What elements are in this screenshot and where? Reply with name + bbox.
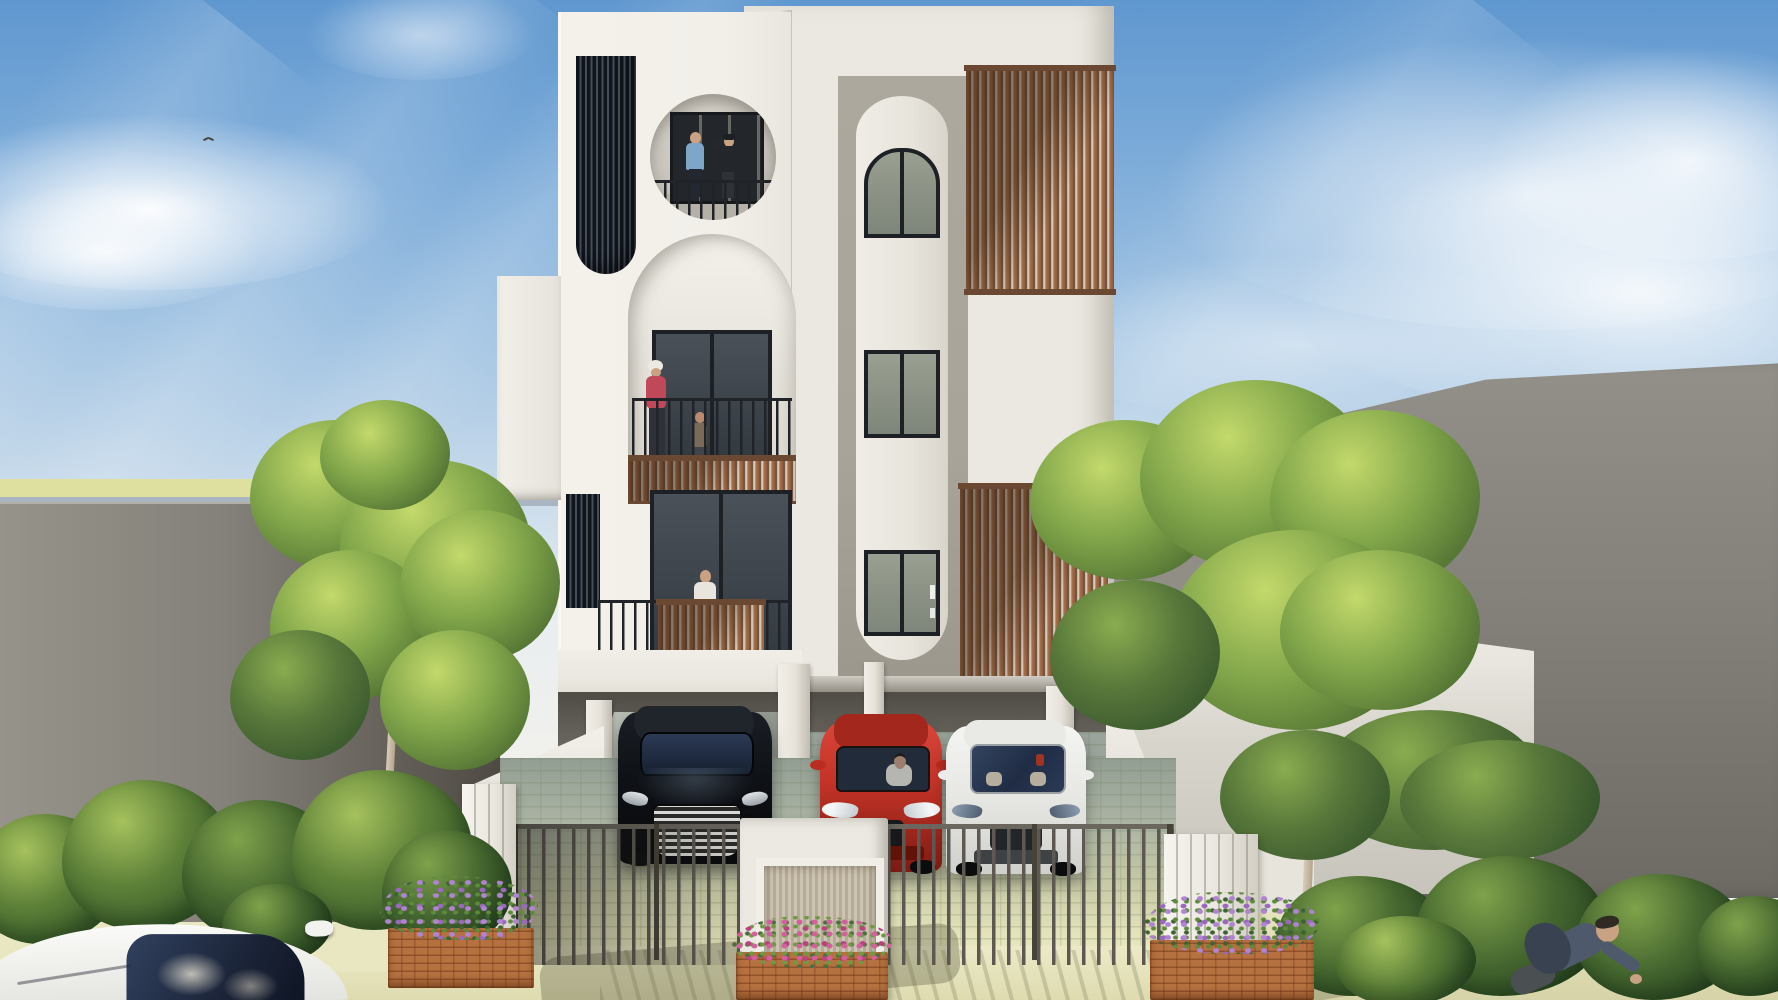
middle-window (864, 350, 940, 438)
car-windshield (126, 934, 304, 1000)
bird-wing (208, 137, 214, 141)
lower-window (864, 550, 940, 636)
arm (1598, 939, 1642, 974)
torso (686, 143, 704, 170)
windshield-tint (838, 748, 928, 790)
car-mirror (810, 760, 826, 770)
tree-left (230, 400, 530, 820)
tree-foliage (230, 630, 370, 760)
balcony-railing (652, 180, 774, 220)
wood-slat-screen-upper (966, 68, 1114, 292)
planter-left-flowers (380, 876, 538, 940)
windshield-reflection (156, 952, 226, 996)
car-mirror (305, 920, 334, 937)
dark-louver-panel-top (576, 56, 636, 274)
car-seat (986, 772, 1002, 786)
car-roof (834, 714, 928, 748)
car-mirror (938, 770, 954, 780)
cap (723, 134, 735, 140)
tree-foliage (320, 400, 450, 510)
window-reflection (930, 608, 935, 618)
planter-center-flowers (732, 916, 892, 968)
bird (203, 136, 215, 142)
tree-foliage (1050, 580, 1220, 730)
hand (1630, 974, 1642, 984)
dark-louver-panel-mid (566, 494, 600, 608)
bush (1336, 916, 1476, 1000)
person-cyclist (1492, 912, 1642, 1000)
tree-foliage (1400, 740, 1600, 860)
windshield-reflection (222, 968, 278, 1000)
car-windshield (836, 746, 930, 792)
car-foreground-white (0, 900, 350, 1000)
planter-right-flowers (1144, 892, 1320, 954)
torso (719, 146, 736, 173)
arch-balcony (628, 234, 796, 504)
arched-window (864, 148, 940, 238)
architectural-rendering-scene (0, 0, 1778, 1000)
circle-balcony (650, 94, 776, 220)
tree-foliage (380, 630, 530, 770)
tree-foliage (1280, 550, 1480, 710)
window-reflection (930, 585, 935, 599)
